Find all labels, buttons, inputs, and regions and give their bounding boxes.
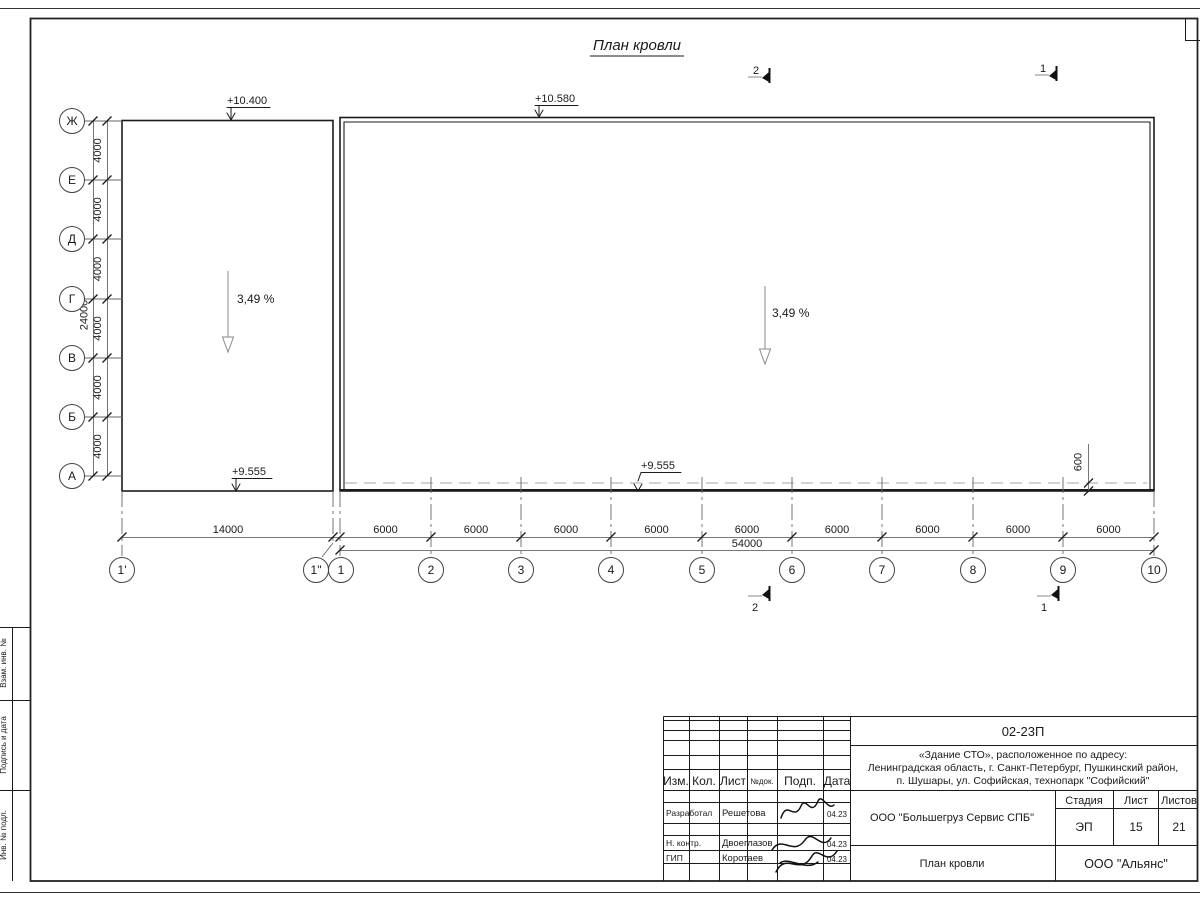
tb-object-line: «Здание СТО», расположенное по адресу: bbox=[919, 749, 1127, 761]
axis-bubble-row-3: Г bbox=[60, 287, 85, 312]
section-marker-2-bottom: 2 bbox=[748, 586, 770, 614]
axis-bubble-col-5: 4 bbox=[599, 558, 624, 583]
axis-bubble-col-2: 1 bbox=[329, 558, 354, 583]
title-block: Изм. Кол. Лист №док. Подп. Дата Разработ… bbox=[663, 717, 1197, 882]
tb-drawing-name: План кровли bbox=[920, 858, 985, 870]
elevation-value: +10.400 bbox=[227, 95, 267, 107]
dim-label: 6000 bbox=[644, 524, 668, 536]
axis-bubble-row-4: В bbox=[60, 346, 85, 371]
axis-label: Г bbox=[69, 292, 76, 306]
axis-bubble-col-6: 5 bbox=[690, 558, 715, 583]
tb-object-line: п. Шушары, ул. Софийская, технопарк "Соф… bbox=[897, 775, 1150, 787]
dim-label: 6000 bbox=[373, 524, 397, 536]
dim-label: 6000 bbox=[554, 524, 578, 536]
axis-label: 3 bbox=[518, 563, 525, 577]
section-number: 1 bbox=[1041, 602, 1047, 614]
elevation-right-top: +10.580 bbox=[535, 93, 578, 117]
tb-role: ГИП bbox=[666, 853, 683, 863]
tb-name: Двоеглазов bbox=[722, 838, 773, 849]
elevation-mid-bottom: +9.555 bbox=[634, 460, 681, 491]
axis-label: 1" bbox=[311, 563, 322, 577]
tb-stage-value: ЭП bbox=[1075, 820, 1092, 834]
axis-bubble-row-0: Ж bbox=[60, 109, 85, 134]
axis-label: 2 bbox=[428, 563, 435, 577]
dim-label: 6000 bbox=[915, 524, 939, 536]
section-number: 1 bbox=[1040, 63, 1046, 75]
tb-name: Коротаев bbox=[722, 853, 763, 864]
section-number: 2 bbox=[752, 602, 758, 614]
axis-label: А bbox=[68, 469, 76, 483]
tb-col-ndok: №док. bbox=[750, 777, 773, 786]
axis-label: Ж bbox=[66, 114, 77, 128]
tb-role: Разработал bbox=[666, 808, 712, 818]
tb-doc-number: 02-23П bbox=[1002, 724, 1045, 739]
axis-bubble-col-1: 1" bbox=[304, 558, 329, 583]
slope-arrow-right: 3,49 % bbox=[760, 286, 810, 364]
tb-org: ООО "Альянс" bbox=[1084, 857, 1168, 871]
roof-block-right bbox=[340, 118, 1154, 492]
axis-bubble-col-0: 1' bbox=[110, 558, 135, 583]
elevation-left-top: +10.400 bbox=[227, 95, 270, 120]
section-marker-1-top: 1 bbox=[1035, 63, 1057, 81]
sidebar-label: Подпись и дата bbox=[0, 716, 8, 774]
roof-outline bbox=[122, 118, 1154, 492]
elevation-value: +9.555 bbox=[641, 460, 675, 472]
dim-label: 4000 bbox=[92, 138, 104, 162]
axis-label: Б bbox=[68, 410, 76, 424]
dim-label: 4000 bbox=[92, 434, 104, 458]
tb-col-data: Дата bbox=[824, 774, 851, 788]
axis-label: 7 bbox=[879, 563, 886, 577]
dim-label: 4000 bbox=[92, 197, 104, 221]
axis-label: 1' bbox=[118, 563, 127, 577]
axis-label: 9 bbox=[1060, 563, 1067, 577]
elevation-value: +9.555 bbox=[232, 466, 266, 478]
axis-label: 8 bbox=[970, 563, 977, 577]
section-marker-2-top: 2 bbox=[748, 65, 770, 83]
tb-sheet-label: Лист bbox=[1124, 795, 1148, 807]
axis-label: Е bbox=[68, 173, 76, 187]
section-number: 2 bbox=[753, 65, 759, 77]
dim-label-total: 54000 bbox=[732, 538, 763, 550]
dim-label: 6000 bbox=[825, 524, 849, 536]
axis-bubble-row-5: Б bbox=[60, 405, 85, 430]
axis-label: 4 bbox=[608, 563, 615, 577]
roof-plan-canvas: Взам. инв. № Подпись и дата Инв. № подл.… bbox=[0, 0, 1200, 900]
axis-bubble-col-11: 10 bbox=[1142, 558, 1167, 583]
dim-label: 4000 bbox=[92, 375, 104, 399]
slope-value: 3,49 % bbox=[237, 292, 275, 306]
elevation-marks: +10.400 +10.580 +9.555 +9.555 bbox=[227, 93, 681, 491]
axis-bubble-col-3: 2 bbox=[419, 558, 444, 583]
tb-name: Решетова bbox=[722, 808, 766, 819]
section-marker-1-bottom: 1 bbox=[1037, 586, 1059, 614]
tb-col-podp: Подп. bbox=[784, 774, 816, 788]
tb-sheets-value: 21 bbox=[1172, 820, 1186, 834]
tb-date: 04.23 bbox=[827, 840, 848, 849]
dim-label: 6000 bbox=[735, 524, 759, 536]
dim-label: 4000 bbox=[92, 316, 104, 340]
tb-stage-label: Стадия bbox=[1065, 795, 1103, 807]
axis-bubble-col-8: 7 bbox=[870, 558, 895, 583]
axis-bubble-row-2: Д bbox=[60, 227, 85, 252]
page-title: План кровли bbox=[593, 37, 682, 54]
col-axes: 14000 6000 6000 6000 6000 6000 6000 6000… bbox=[110, 477, 1167, 583]
sidebar-label: Взам. инв. № bbox=[0, 638, 8, 688]
tb-col-izm: Изм. bbox=[663, 774, 689, 788]
slope-arrows: 3,49 % 3,49 % bbox=[223, 271, 810, 364]
tb-col-kol: Кол. bbox=[692, 774, 716, 788]
axis-label: 6 bbox=[789, 563, 796, 577]
overhang-dimension: 600 bbox=[1073, 444, 1094, 496]
tb-role: Н. контр. bbox=[666, 838, 701, 848]
elevation-left-bottom: +9.555 bbox=[232, 466, 272, 491]
sidebar-label: Инв. № подл. bbox=[0, 810, 8, 860]
axis-label: В bbox=[68, 351, 76, 365]
dim-label: 4000 bbox=[92, 257, 104, 281]
dim-label: 600 bbox=[1073, 453, 1085, 471]
dim-label: 6000 bbox=[1006, 524, 1030, 536]
axis-label: 5 bbox=[699, 563, 706, 577]
axis-label: 10 bbox=[1147, 563, 1161, 577]
tb-sheet-value: 15 bbox=[1129, 820, 1143, 834]
axis-bubble-col-10: 9 bbox=[1051, 558, 1076, 583]
slope-value: 3,49 % bbox=[772, 306, 810, 320]
signature bbox=[772, 837, 831, 850]
dim-label: 14000 bbox=[213, 524, 244, 536]
axis-bubble-col-4: 3 bbox=[509, 558, 534, 583]
dim-label: 6000 bbox=[464, 524, 488, 536]
dim-label: 6000 bbox=[1096, 524, 1120, 536]
row-axes: 4000 4000 4000 4000 4000 4000 24000 Ж Е … bbox=[60, 109, 123, 489]
axis-label: 1 bbox=[338, 563, 345, 577]
axis-bubble-row-6: А bbox=[60, 464, 85, 489]
tb-company: ООО "Большегруз Сервис СПБ" bbox=[870, 812, 1034, 824]
frame-sidebar: Взам. инв. № Подпись и дата Инв. № подл. bbox=[0, 627, 30, 881]
drawing-title: План кровли bbox=[590, 37, 684, 56]
tb-col-list: Лист bbox=[720, 774, 747, 788]
tb-date: 04.23 bbox=[827, 810, 848, 819]
drawing-sheet: Взам. инв. № Подпись и дата Инв. № подл.… bbox=[0, 0, 1200, 900]
axis-bubble-col-9: 8 bbox=[961, 558, 986, 583]
elevation-value: +10.580 bbox=[535, 93, 575, 105]
axis-bubble-col-7: 6 bbox=[780, 558, 805, 583]
tb-object-line: Ленинградская область, г. Санкт-Петербур… bbox=[868, 762, 1178, 774]
axis-label: Д bbox=[68, 232, 76, 246]
tb-sheets-label: Листов bbox=[1161, 795, 1197, 807]
axis-bubble-row-1: Е bbox=[60, 168, 85, 193]
slope-arrow-left: 3,49 % bbox=[223, 271, 275, 352]
